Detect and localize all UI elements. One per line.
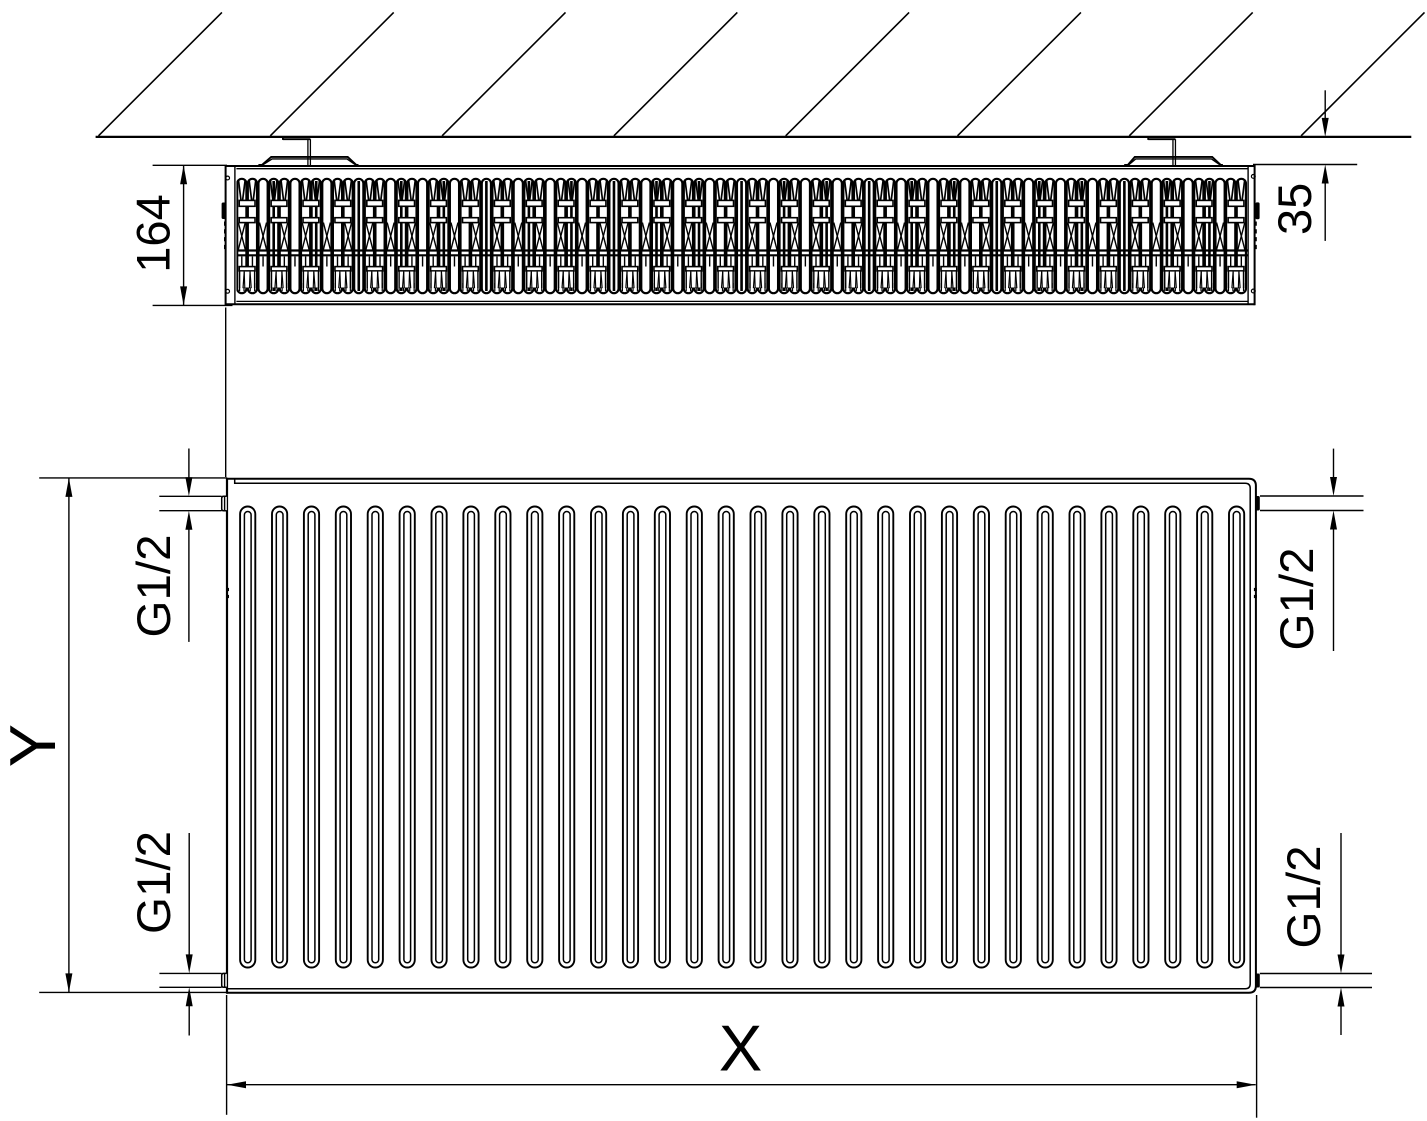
svg-text:G1/2: G1/2	[1271, 548, 1324, 651]
svg-text:G1/2: G1/2	[128, 831, 181, 934]
svg-text:35: 35	[1268, 183, 1321, 235]
svg-text:G1/2: G1/2	[128, 535, 181, 638]
svg-text:G1/2: G1/2	[1278, 846, 1331, 949]
svg-text:164: 164	[126, 194, 179, 272]
svg-text:Y: Y	[0, 724, 69, 767]
svg-text:X: X	[719, 1011, 762, 1084]
